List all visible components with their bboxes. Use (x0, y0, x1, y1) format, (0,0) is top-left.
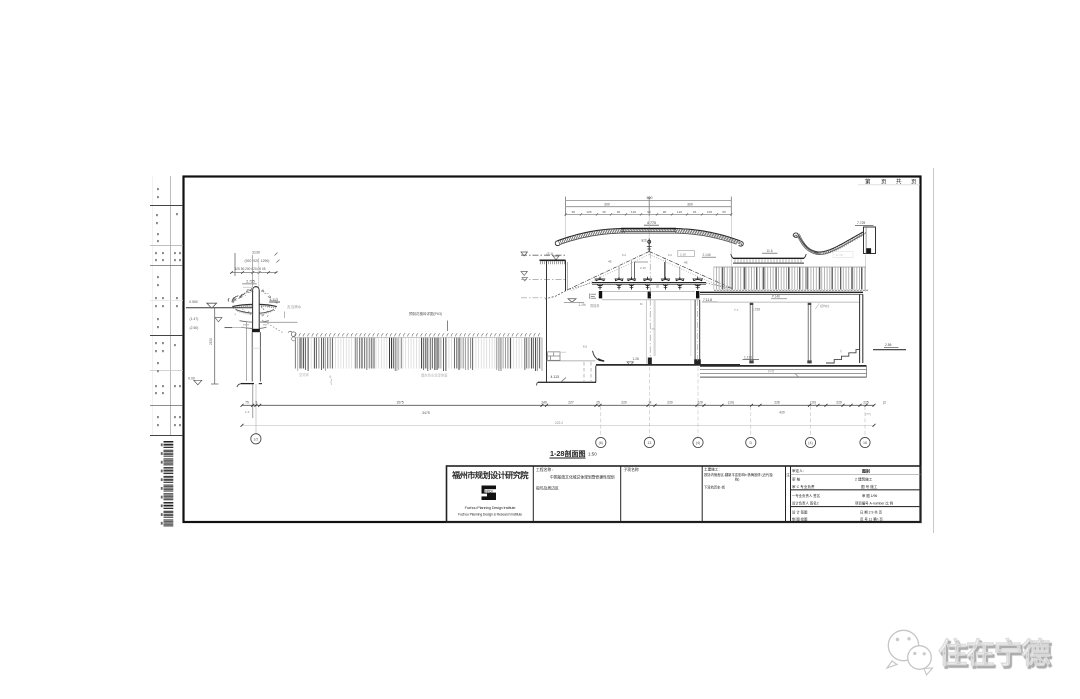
svg-text:1-28: 1-28 (550, 449, 564, 458)
svg-text:宝顶: 宝顶 (641, 239, 647, 243)
svg-text:65: 65 (572, 210, 576, 214)
svg-text:3130: 3130 (252, 251, 260, 255)
svg-text:瓦当滴水: 瓦当滴水 (287, 304, 302, 309)
svg-text:300: 300 (604, 203, 610, 207)
svg-text:Fuzhou Planning Design & Resea: Fuzhou Planning Design & Research Instit… (458, 513, 522, 517)
svg-text:90: 90 (663, 210, 667, 214)
svg-text:220: 220 (621, 401, 627, 405)
svg-text:(10): (10) (810, 401, 816, 405)
svg-text:预制花格砖详图(P63): 预制花格砖详图(P63) (409, 311, 442, 316)
svg-text:审 核: 审 核 (792, 477, 801, 482)
svg-text:2.725: 2.725 (246, 279, 255, 283)
svg-text:下双杭历史-街: 下双杭历史-街 (704, 485, 726, 490)
svg-text:2.148: 2.148 (703, 253, 711, 257)
svg-text:审 C 专业负责: 审 C 专业负责 (792, 484, 815, 489)
svg-text:7.729: 7.729 (857, 221, 865, 225)
svg-text:注: 注 (786, 472, 790, 477)
svg-text:229: 229 (836, 401, 842, 405)
svg-text:9: 9 (255, 401, 257, 405)
svg-text:1575: 1575 (396, 401, 404, 405)
svg-text:(4): (4) (696, 441, 700, 445)
svg-text:审 图 1/96: 审 图 1/96 (862, 493, 877, 498)
svg-text:(1.47): (1.47) (190, 317, 199, 321)
svg-text:7.11.8: 7.11.8 (703, 298, 712, 302)
svg-text:(10): (10) (728, 401, 734, 405)
svg-text:2 建筑施工: 2 建筑施工 (855, 477, 873, 482)
svg-text:13: 13 (647, 441, 651, 445)
svg-text:(2.1): (2.1) (547, 252, 554, 256)
svg-text:227: 227 (568, 401, 574, 405)
svg-text:1.1%: 1.1% (579, 303, 586, 307)
svg-text:240: 240 (541, 401, 547, 405)
svg-text:11.05: 11.05 (836, 253, 844, 257)
svg-text:1:50: 1:50 (588, 452, 597, 457)
svg-text:土建施工 :: 土建施工 : (704, 467, 720, 472)
svg-text:45: 45 (608, 260, 612, 264)
svg-text:结构柱: 结构柱 (820, 303, 829, 308)
svg-text:烟灰色水泥漆饰面: 烟灰色水泥漆饰面 (421, 373, 448, 378)
svg-text:图别: 图别 (862, 468, 870, 474)
svg-text:设计负责人 签名2: 设计负责人 签名2 (792, 501, 819, 506)
svg-text:第: 第 (865, 178, 871, 186)
svg-text:栋): 栋) (735, 476, 739, 481)
svg-text:子项名称: 子项名称 (624, 467, 639, 472)
svg-text:325 50,200 620,05 05: 325 50,200 620,05 05 (234, 267, 265, 271)
svg-text:日 期 2.9 共 页: 日 期 2.9 共 页 (860, 510, 883, 515)
svg-text:(2: (2 (883, 401, 886, 405)
svg-text:11.6: 11.6 (766, 249, 772, 253)
svg-text:1.2: 1.2 (245, 410, 250, 414)
svg-text:P.146: P.146 (772, 295, 780, 299)
svg-text:Fuzhou Planning Design Institu: Fuzhou Planning Design Institute (465, 505, 516, 510)
svg-text:共: 共 (896, 178, 902, 186)
svg-text:2.15: 2.15 (640, 266, 646, 270)
svg-text:页 号 11 第h 页: 页 号 11 第h 页 (860, 517, 883, 522)
svg-text:中国船政文化城总体规划暨修建性规划: 中国船政文化城总体规划暨修建性规划 (550, 475, 615, 480)
svg-text:M: M (649, 401, 652, 405)
svg-text:1.26: 1.26 (633, 357, 640, 361)
svg-text:45: 45 (693, 210, 697, 214)
svg-text:审定人:: 审定人: (792, 468, 804, 473)
svg-text:45: 45 (602, 210, 606, 214)
svg-text:300: 300 (687, 203, 693, 207)
svg-text:斜坡: 斜坡 (768, 368, 774, 373)
svg-text:6.5: 6.5 (583, 345, 587, 349)
svg-text:船坞及周边区: 船坞及周边区 (536, 486, 559, 491)
svg-text:剖面图: 剖面图 (565, 449, 586, 458)
svg-text:600: 600 (647, 196, 653, 200)
svg-text:对: 对 (656, 285, 659, 289)
svg-text:225: 225 (863, 401, 869, 405)
svg-text:(77): (77) (865, 412, 871, 416)
svg-text:工程名称 :: 工程名称 : (536, 467, 553, 472)
svg-text:105: 105 (707, 210, 712, 214)
svg-text:45: 45 (684, 261, 688, 265)
svg-text:120: 120 (631, 210, 636, 214)
svg-text:4.770: 4.770 (647, 221, 656, 225)
svg-text:65: 65 (722, 210, 726, 214)
svg-text:6.2: 6.2 (622, 253, 626, 257)
svg-text:4.113: 4.113 (551, 375, 560, 379)
svg-text:0.00: 0.00 (188, 376, 195, 380)
svg-text:6: 6 (330, 375, 332, 379)
svg-text:D: D (749, 441, 752, 445)
svg-text:项目编号 A-number 比 例: 项目编号 A-number 比 例 (855, 501, 894, 506)
svg-text:(2.50): (2.50) (190, 326, 199, 330)
svg-text:75: 75 (245, 401, 249, 405)
svg-text:(6): (6) (599, 441, 603, 445)
svg-text:90: 90 (617, 210, 621, 214)
svg-text:2.30: 2.30 (680, 252, 686, 256)
svg-text:220: 220 (667, 401, 673, 405)
svg-text:铁协内宿舍区-翻新平遗影响b 杨梅宣修 (近代独: 铁协内宿舍区-翻新平遗影响b 杨梅宣修 (近代独 (704, 472, 773, 477)
svg-text:FPDI: FPDI (485, 489, 492, 493)
svg-text:3475: 3475 (422, 411, 430, 415)
svg-text:222.2: 222.2 (555, 421, 563, 425)
svg-text:0.550: 0.550 (189, 300, 198, 304)
svg-text:2150: 2150 (209, 338, 213, 345)
svg-text:226: 226 (774, 401, 780, 405)
svg-text:住在宁德: 住在宁德 (938, 636, 1050, 670)
svg-text:1/2: 1/2 (253, 437, 258, 441)
svg-text:2.56: 2.56 (885, 343, 892, 347)
svg-text:(920 920 1290): (920 920 1290) (245, 259, 270, 263)
svg-text:75: 75 (596, 401, 600, 405)
svg-text:1.113: 1.113 (744, 355, 752, 359)
svg-text:空花砖: 空花砖 (299, 372, 310, 377)
svg-text:(4): (4) (808, 441, 812, 445)
svg-text:105: 105 (586, 210, 591, 214)
svg-text:7.7: 7.7 (734, 308, 739, 312)
svg-text:4.113: 4.113 (269, 298, 278, 302)
svg-text:1.726: 1.726 (752, 307, 760, 311)
svg-text:120: 120 (677, 210, 682, 214)
svg-text:图 号 施工: 图 号 施工 (861, 484, 878, 489)
svg-text:16: 16 (863, 441, 867, 445)
svg-text:设 计 签图: 设 计 签图 (792, 510, 808, 515)
svg-text:420: 420 (779, 411, 785, 415)
svg-text:90: 90 (647, 210, 651, 214)
svg-text:福州市规划设计研究院: 福州市规划设计研究院 (451, 470, 529, 480)
svg-text:6.2: 6.2 (668, 253, 672, 257)
svg-text:香椿条: 香椿条 (590, 303, 600, 308)
svg-text:25: 25 (652, 327, 656, 331)
svg-text:一专业负责人 签名: 一专业负责人 签名 (792, 493, 820, 498)
svg-text:制 图 绘图: 制 图 绘图 (792, 517, 808, 522)
